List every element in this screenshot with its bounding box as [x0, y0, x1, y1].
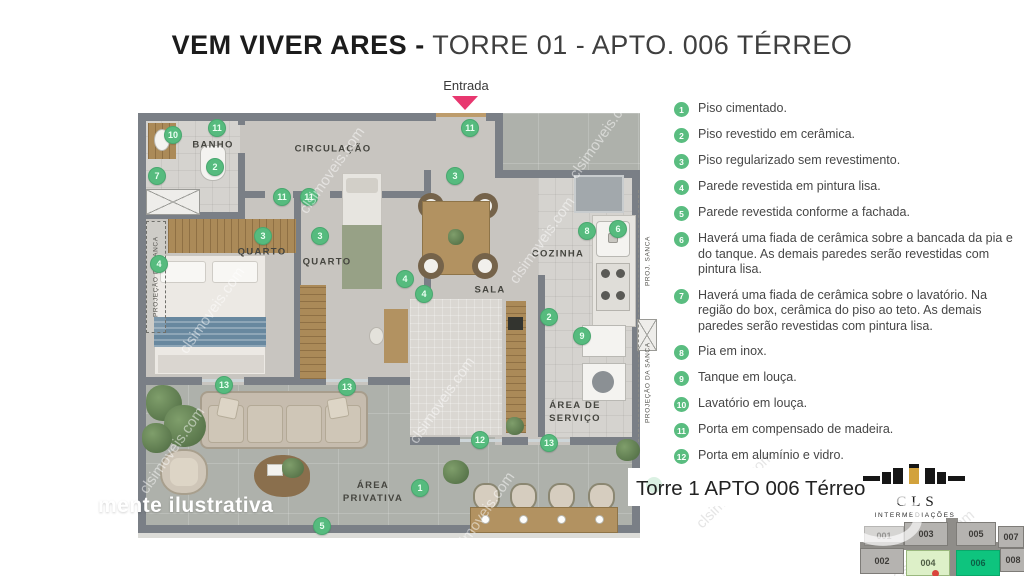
spec-marker: 4	[150, 255, 168, 273]
legend-item: 6 Haverá uma fiada de cerâmica sobre a b…	[674, 231, 1018, 278]
legend-item-number: 1	[674, 102, 689, 117]
minimap-unit: 008	[1000, 548, 1024, 572]
legend-item: 12 Porta em alumínio e vidro.	[674, 448, 1018, 464]
tv	[508, 317, 523, 330]
legend-item-number: 2	[674, 128, 689, 143]
unit-location-minimap: 001003005007002004006008	[858, 518, 1024, 576]
pillow	[346, 178, 378, 193]
dining-chair	[472, 253, 498, 279]
coffee-table-book	[267, 464, 283, 476]
tank-bowl	[592, 371, 614, 393]
unit-caption: Torre 1 APTO 006 Térreo	[636, 477, 865, 501]
legend-item-text: Piso regularizado sem revestimento.	[698, 153, 900, 169]
spec-marker: 13	[540, 434, 558, 452]
legend-item-text: Pia em inox.	[698, 344, 767, 360]
minimap-unit: 007	[998, 526, 1024, 548]
armchair-cushion	[170, 458, 198, 486]
entrance-door-lintel	[436, 113, 486, 117]
legend-item-text: Haverá uma fiada de cerâmica sobre o lav…	[698, 288, 1018, 335]
patio-plant-3	[142, 423, 172, 453]
title-unit: TORRE 01 - APTO. 006 TÉRREO	[425, 30, 853, 60]
legend-item-number: 12	[674, 449, 689, 464]
legend-item-text: Tanque em louça.	[698, 370, 797, 386]
desk	[384, 309, 408, 363]
disclaimer-text: mente ilustrativa	[98, 494, 273, 518]
desk-chair	[369, 327, 384, 345]
legend-item-text: Porta em compensado de madeira.	[698, 422, 893, 438]
patio-plant-5	[616, 439, 640, 461]
sanca-annotation: PROJEÇÃO DA SANCA	[146, 221, 166, 333]
shower-box	[146, 189, 200, 215]
legend-item-number: 8	[674, 345, 689, 360]
room-label: BANHO	[192, 140, 233, 153]
bedroom-rug	[158, 355, 264, 373]
living-rug	[410, 299, 502, 435]
burner	[616, 291, 625, 300]
sanca-annotation: PROJ. SANCA	[639, 207, 657, 315]
coffee-table-plant	[282, 458, 304, 478]
cls-skyline-icon	[863, 464, 967, 488]
wardrobe-2	[300, 285, 326, 379]
floor-plan: PROJEÇÃO DA SANCAPROJ. SANCAPROJEÇÃO DA …	[130, 95, 660, 540]
legend-item-text: Parede revestida em pintura lisa.	[698, 179, 881, 195]
legend-item: 11 Porta em compensado de madeira.	[674, 422, 1018, 438]
sanca-annotation: PROJEÇÃO DA SANCA	[639, 327, 657, 439]
spec-marker: 10	[164, 126, 182, 144]
spec-marker: 6	[609, 220, 627, 238]
spec-marker: 4	[415, 285, 433, 303]
legend-item-text: Lavatório em louça.	[698, 396, 807, 412]
legend-item-number: 11	[674, 423, 689, 438]
entrance-label: Entrada	[411, 78, 521, 93]
spec-marker: 3	[254, 227, 272, 245]
spec-marker: 4	[396, 270, 414, 288]
legend-item-number: 6	[674, 232, 689, 247]
spec-marker: 12	[471, 431, 489, 449]
legend-item-text: Porta em alumínio e vidro.	[698, 448, 844, 464]
minimap-unit: 002	[860, 548, 904, 574]
sofa-pillow	[326, 396, 349, 419]
spec-marker: 8	[578, 222, 596, 240]
spec-marker: 5	[313, 517, 331, 535]
burner	[601, 269, 610, 278]
fridge	[574, 175, 624, 213]
room-label: ÁREA DE SERVIÇO	[549, 400, 601, 426]
patio-edge	[138, 533, 640, 538]
room-label: SALA	[474, 285, 505, 298]
legend-item: 4 Parede revestida em pintura lisa.	[674, 179, 1018, 195]
room-label: QUARTO	[238, 247, 287, 260]
burner	[601, 291, 610, 300]
sofa-pillow	[216, 396, 240, 420]
entrance-arrow-icon	[452, 96, 478, 110]
legend-item-number: 3	[674, 154, 689, 169]
legend-item: 1 Piso cimentado.	[674, 101, 1018, 117]
legend-item-number: 5	[674, 206, 689, 221]
spec-marker: 1	[411, 479, 429, 497]
room-label: COZINHA	[532, 249, 584, 262]
minimap-unit: 005	[956, 522, 996, 546]
minimap-watermark-arc	[844, 492, 922, 546]
spec-marker: 11	[461, 119, 479, 137]
legend-item-text: Piso revestido em cerâmica.	[698, 127, 855, 143]
legend-item: 10 Lavatório em louça.	[674, 396, 1018, 412]
page: { "title": { "brand": "VEM VIVER ARES -"…	[0, 0, 1024, 576]
spec-marker: 13	[215, 376, 233, 394]
spec-marker: 13	[338, 378, 356, 396]
spec-marker: 3	[446, 167, 464, 185]
bed-runner	[154, 317, 266, 347]
title-brand: VEM VIVER ARES -	[172, 30, 425, 60]
legend-item: 7 Haverá uma fiada de cerâmica sobre o l…	[674, 288, 1018, 335]
minimap-unit: 004	[906, 550, 950, 576]
page-title: VEM VIVER ARES - TORRE 01 - APTO. 006 TÉ…	[0, 30, 1024, 61]
minimap-unit: 006	[956, 550, 1000, 576]
patio-plant-4	[443, 460, 469, 484]
plant-small	[506, 417, 524, 435]
legend-item-number: 10	[674, 397, 689, 412]
legend-item-number: 9	[674, 371, 689, 386]
room-label: QUARTO	[303, 257, 352, 270]
legend-item-text: Parede revestida conforme a fachada.	[698, 205, 910, 221]
table-plant	[448, 229, 464, 245]
spec-marker: 2	[206, 158, 224, 176]
legend-item: 5 Parede revestida conforme a fachada.	[674, 205, 1018, 221]
minimap-marker-dot	[932, 570, 939, 576]
spec-marker: 7	[148, 167, 166, 185]
pillow	[212, 261, 258, 283]
room-label: CIRCULAÇÃO	[295, 144, 372, 157]
spec-marker: 9	[573, 327, 591, 345]
legend-item-text: Haverá uma fiada de cerâmica sobre a ban…	[698, 231, 1018, 278]
spec-marker: 11	[208, 119, 226, 137]
spec-marker: 11	[273, 188, 291, 206]
burner	[616, 269, 625, 278]
spec-marker: 2	[540, 308, 558, 326]
dining-chair	[418, 253, 444, 279]
legend-item-number: 4	[674, 180, 689, 195]
legend-item: 3 Piso regularizado sem revestimento.	[674, 153, 1018, 169]
spec-marker: 3	[311, 227, 329, 245]
spec-marker: 11	[300, 188, 318, 206]
legend-item-number: 7	[674, 289, 689, 304]
room-label: ÁREA PRIVATIVA	[343, 480, 403, 506]
legend-item: 8 Pia em inox.	[674, 344, 1018, 360]
legend-item: 9 Tanque em louça.	[674, 370, 1018, 386]
legend: 1 Piso cimentado. 2 Piso revestido em ce…	[674, 101, 1018, 474]
legend-item-text: Piso cimentado.	[698, 101, 787, 117]
legend-item: 2 Piso revestido em cerâmica.	[674, 127, 1018, 143]
